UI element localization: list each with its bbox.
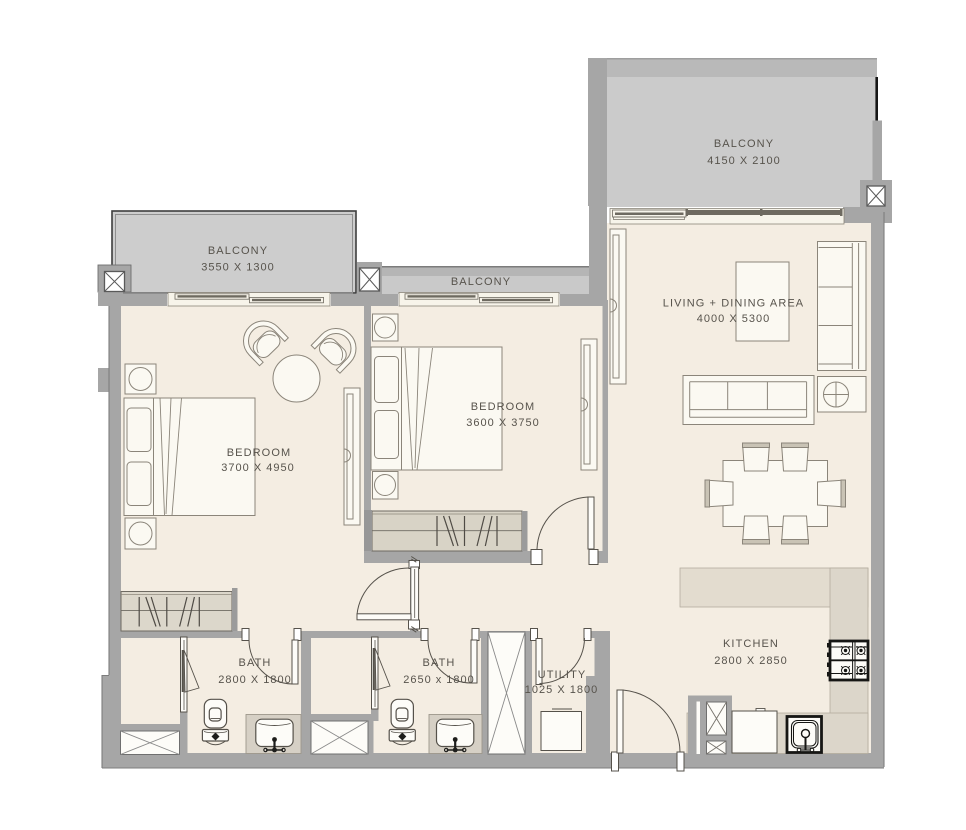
svg-text:4000 X 5300: 4000 X 5300 bbox=[697, 313, 770, 325]
svg-text:BALCONY: BALCONY bbox=[714, 138, 774, 150]
svg-text:UTILITY: UTILITY bbox=[538, 669, 587, 681]
svg-text:4150 X 2100: 4150 X 2100 bbox=[707, 155, 780, 167]
svg-text:3600 X 3750: 3600 X 3750 bbox=[466, 417, 539, 429]
svg-text:2800 X 1800: 2800 X 1800 bbox=[218, 674, 291, 686]
svg-text:LIVING + DINING AREA: LIVING + DINING AREA bbox=[663, 298, 805, 310]
svg-text:KITCHEN: KITCHEN bbox=[723, 638, 779, 650]
svg-text:1025 X 1800: 1025 X 1800 bbox=[525, 684, 598, 696]
svg-text:3700 X 4950: 3700 X 4950 bbox=[221, 462, 294, 474]
svg-text:2800 X 2850: 2800 X 2850 bbox=[714, 655, 787, 667]
svg-text:BEDROOM: BEDROOM bbox=[471, 401, 536, 413]
svg-text:BALCONY: BALCONY bbox=[451, 276, 511, 288]
svg-text:BEDROOM: BEDROOM bbox=[227, 447, 292, 459]
svg-text:BATH: BATH bbox=[239, 657, 272, 669]
svg-text:3550 X 1300: 3550 X 1300 bbox=[201, 262, 274, 274]
svg-text:BATH: BATH bbox=[423, 657, 456, 669]
svg-text:BALCONY: BALCONY bbox=[208, 245, 268, 257]
svg-text:2650 x 1800: 2650 x 1800 bbox=[403, 674, 475, 686]
